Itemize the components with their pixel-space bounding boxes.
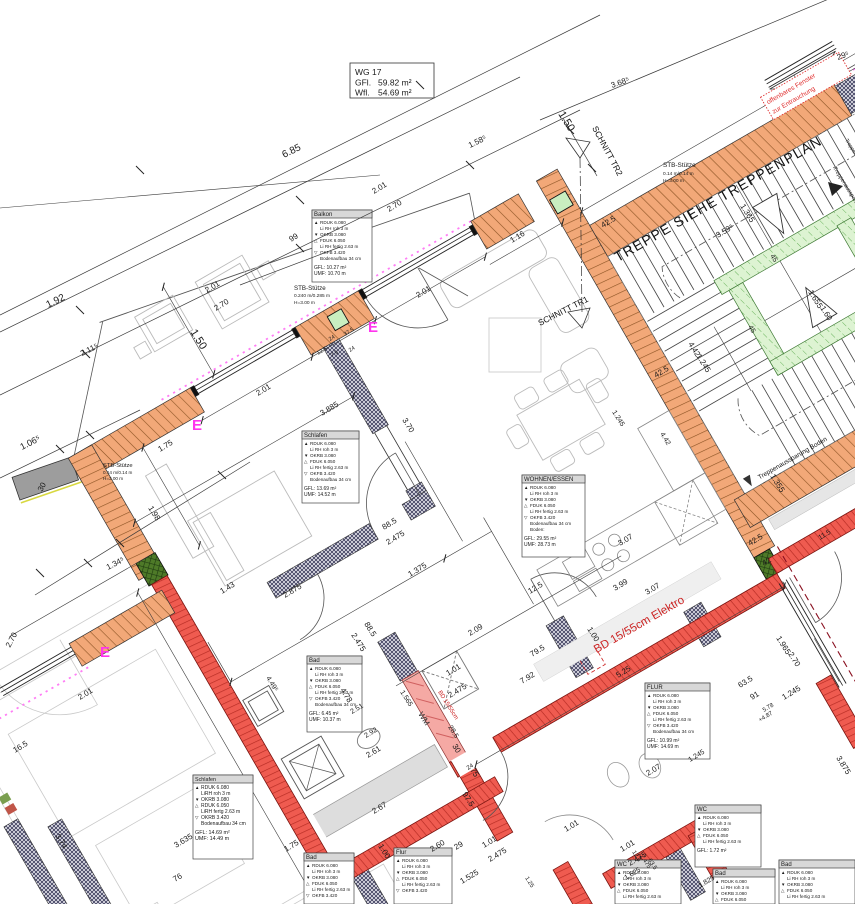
svg-text:7.92: 7.92 (518, 670, 536, 686)
svg-text:1.245: 1.245 (610, 409, 625, 428)
svg-text:▲: ▲ (304, 441, 308, 446)
svg-text:4.49⁵: 4.49⁵ (264, 675, 279, 693)
svg-text:RDUK 6.080: RDUK 6.080 (703, 815, 729, 820)
svg-text:0.14 m/0.14 m: 0.14 m/0.14 m (103, 470, 133, 475)
svg-text:OKFB 3.420: OKFB 3.420 (653, 723, 679, 728)
svg-text:UMF: 28.73 m: UMF: 28.73 m (524, 542, 556, 548)
svg-text:▼: ▼ (617, 882, 621, 887)
svg-text:FDUK 6.050: FDUK 6.050 (310, 459, 336, 464)
svg-text:E: E (100, 644, 110, 661)
svg-text:2.01: 2.01 (414, 284, 432, 300)
svg-text:Bad: Bad (306, 855, 317, 861)
svg-text:▼: ▼ (309, 678, 313, 683)
svg-text:▼: ▼ (195, 797, 199, 802)
svg-text:2.09: 2.09 (466, 622, 484, 638)
svg-text:1.375: 1.375 (406, 560, 428, 578)
svg-text:RDUK 6.080: RDUK 6.080 (315, 666, 341, 671)
svg-text:Li RH fertig 2.63 m: Li RH fertig 2.63 m (310, 465, 348, 470)
svg-text:1.06⁵: 1.06⁵ (18, 433, 42, 452)
svg-text:▼: ▼ (524, 497, 528, 502)
svg-text:1.245: 1.245 (694, 352, 713, 374)
svg-text:1.92: 1.92 (44, 292, 67, 311)
svg-text:Li RH fertig 2.63 m: Li RH fertig 2.63 m (530, 509, 568, 514)
svg-text:OKFB 3.420: OKFB 3.420 (530, 515, 556, 520)
svg-text:2.01: 2.01 (76, 686, 94, 702)
svg-text:OKRB 3.080: OKRB 3.080 (402, 870, 428, 875)
svg-text:▲: ▲ (697, 815, 701, 820)
svg-text:Li RH roh 3 m: Li RH roh 3 m (721, 885, 750, 890)
svg-text:1.75: 1.75 (282, 838, 300, 854)
svg-text:Bodenaufbau 34 cm: Bodenaufbau 34 cm (530, 521, 571, 526)
svg-text:RDUK 6.080: RDUK 6.080 (787, 870, 813, 875)
svg-text:▲: ▲ (314, 220, 318, 225)
svg-text:3.99: 3.99 (611, 577, 629, 593)
svg-text:UMF: 10.37 m: UMF: 10.37 m (309, 717, 341, 723)
svg-text:Li RH roh 3 m: Li RH roh 3 m (312, 869, 341, 874)
svg-text:RDUK 6.080: RDUK 6.080 (310, 441, 336, 446)
svg-text:Treppenanlage: Treppenanlage (843, 138, 855, 170)
svg-text:0.14 m/0.14 m: 0.14 m/0.14 m (663, 171, 694, 177)
svg-text:2.70: 2.70 (786, 650, 802, 668)
svg-text:WOHNEN/ESSEN: WOHNEN/ESSEN (524, 477, 573, 483)
svg-text:Li RH roh 3 m: Li RH roh 3 m (315, 672, 344, 677)
svg-text:16.5: 16.5 (11, 739, 29, 755)
svg-text:Wfl.: Wfl. (355, 88, 370, 98)
svg-text:2.92: 2.92 (363, 727, 378, 740)
svg-text:2.01: 2.01 (370, 180, 388, 196)
svg-text:▲: ▲ (781, 870, 785, 875)
svg-text:E: E (368, 319, 378, 336)
svg-text:OKFB 3.420: OKFB 3.420 (312, 893, 338, 898)
svg-text:UMF: 14.52 m: UMF: 14.52 m (304, 492, 336, 498)
svg-text:STB-Stütze: STB-Stütze (294, 285, 326, 292)
svg-text:Balkon: Balkon (314, 212, 332, 218)
svg-text:FDUK 6.050: FDUK 6.050 (320, 238, 346, 243)
svg-text:88.5: 88.5 (380, 516, 398, 532)
svg-text:3.885: 3.885 (318, 399, 340, 417)
svg-text:▲: ▲ (715, 879, 719, 884)
svg-text:Li RH roh 3 m: Li RH roh 3 m (402, 864, 431, 869)
svg-text:OKRB 3.080: OKRB 3.080 (315, 678, 341, 683)
svg-text:▲: ▲ (306, 863, 310, 868)
svg-text:GFL: 1.72 m²: GFL: 1.72 m² (697, 848, 727, 854)
svg-text:▲: ▲ (309, 666, 313, 671)
svg-text:Bodenaufbau 34 cm: Bodenaufbau 34 cm (320, 256, 361, 261)
svg-text:Li RH roh 3 m: Li RH roh 3 m (310, 447, 339, 452)
svg-text:59.82 m²: 59.82 m² (378, 78, 412, 88)
svg-text:▼: ▼ (306, 875, 310, 880)
svg-text:▼: ▼ (715, 891, 719, 896)
svg-text:Li RH roh 3 m: Li RH roh 3 m (320, 226, 349, 231)
svg-text:2.70: 2.70 (212, 297, 230, 313)
svg-text:29⁵: 29⁵ (836, 49, 850, 61)
svg-text:OKFB 3.420: OKFB 3.420 (310, 471, 336, 476)
svg-text:FDUK 6.050: FDUK 6.050 (787, 888, 813, 893)
svg-text:▼: ▼ (697, 827, 701, 832)
svg-text:SCHNITT TR2: SCHNITT TR2 (590, 124, 625, 177)
svg-text:Li RH roh 3 m: Li RH roh 3 m (653, 699, 682, 704)
svg-text:UMF: 14.49 m: UMF: 14.49 m (195, 836, 230, 842)
svg-text:WC: WC (697, 807, 708, 813)
svg-text:FDUK 6.050: FDUK 6.050 (315, 684, 341, 689)
svg-text:2.01: 2.01 (254, 382, 272, 398)
svg-text:1.58⁵: 1.58⁵ (467, 133, 488, 149)
svg-text:Li RH roh 3 m: Li RH roh 3 m (530, 491, 559, 496)
svg-text:3.70: 3.70 (400, 416, 416, 434)
svg-text:▼: ▼ (647, 705, 651, 710)
svg-text:Li RH fertig 2.63 m: Li RH fertig 2.63 m (703, 839, 741, 844)
svg-text:Schlafen: Schlafen (304, 433, 327, 439)
svg-text:FDUK 6.050: FDUK 6.050 (653, 711, 679, 716)
svg-text:▼: ▼ (781, 882, 785, 887)
svg-text:6.85: 6.85 (280, 142, 303, 161)
svg-text:4.42: 4.42 (658, 431, 671, 446)
svg-text:1.245: 1.245 (780, 683, 802, 701)
svg-text:OKRB 3.080: OKRB 3.080 (703, 827, 729, 832)
svg-text:OKFB 3.420: OKFB 3.420 (402, 888, 428, 893)
svg-text:FDUK 6.050: FDUK 6.050 (721, 897, 747, 902)
svg-text:Li RH fertig 2.63 m: Li RH fertig 2.63 m (320, 244, 358, 249)
svg-text:12.5: 12.5 (526, 580, 544, 596)
svg-text:0.240 m/0.285 m: 0.240 m/0.285 m (294, 293, 330, 299)
svg-text:Bodenaufbau 34 cm: Bodenaufbau 34 cm (201, 821, 246, 827)
svg-text:▲: ▲ (195, 785, 199, 790)
svg-text:OKFB 3.420: OKFB 3.420 (320, 250, 346, 255)
svg-text:RDUK 6.080: RDUK 6.080 (320, 220, 346, 225)
svg-text:2.61: 2.61 (364, 744, 382, 760)
svg-text:OKRB 3.080: OKRB 3.080 (721, 891, 747, 896)
svg-text:RDUK 6.080: RDUK 6.080 (402, 858, 428, 863)
svg-text:2.475: 2.475 (349, 631, 368, 653)
svg-text:24: 24 (348, 345, 356, 353)
svg-text:2.475: 2.475 (384, 528, 406, 546)
svg-text:3.875: 3.875 (834, 754, 853, 776)
svg-text:99: 99 (287, 231, 300, 244)
svg-text:Schlafen: Schlafen (195, 777, 216, 783)
svg-text:1.34⁵: 1.34⁵ (105, 555, 126, 572)
svg-text:1.25: 1.25 (523, 876, 535, 890)
svg-text:OKRB 3.080: OKRB 3.080 (320, 232, 346, 237)
svg-text:29: 29 (452, 839, 465, 852)
svg-text:OKRB 3.080: OKRB 3.080 (310, 453, 336, 458)
svg-text:RDUK 6.080: RDUK 6.080 (530, 485, 556, 490)
svg-text:▲: ▲ (647, 693, 651, 698)
svg-text:RDUK 6.080: RDUK 6.080 (312, 863, 338, 868)
svg-text:1.50: 1.50 (187, 327, 209, 352)
svg-text:Bad: Bad (309, 658, 320, 664)
svg-text:▼: ▼ (396, 870, 400, 875)
svg-text:1.01: 1.01 (444, 662, 462, 678)
svg-text:STB-Stütze: STB-Stütze (663, 162, 696, 169)
svg-text:1.75: 1.75 (156, 438, 174, 454)
svg-text:2.475: 2.475 (486, 845, 508, 863)
svg-text:WC: WC (617, 862, 628, 868)
svg-text:Li RH fertig 2.63 m: Li RH fertig 2.63 m (312, 887, 350, 892)
svg-text:OKRB 3.080: OKRB 3.080 (653, 705, 679, 710)
svg-text:RDUK 6.080: RDUK 6.080 (721, 879, 747, 884)
svg-text:3.07: 3.07 (616, 532, 634, 548)
svg-text:UMF: 14.69 m: UMF: 14.69 m (647, 744, 679, 750)
svg-text:E: E (192, 417, 202, 434)
svg-text:3.635: 3.635 (172, 831, 194, 849)
svg-text:RDUK 6.080: RDUK 6.080 (653, 693, 679, 698)
svg-text:WG 17: WG 17 (355, 67, 382, 77)
svg-text:79.5: 79.5 (528, 643, 546, 659)
svg-text:▲: ▲ (396, 858, 400, 863)
svg-text:OKRB 3.080: OKRB 3.080 (312, 875, 338, 880)
svg-text:FDUK 6.050: FDUK 6.050 (402, 876, 428, 881)
svg-text:Li RH fertig 2.63 m: Li RH fertig 2.63 m (402, 882, 440, 887)
svg-text:STB-Stütze: STB-Stütze (103, 463, 133, 469)
svg-text:2.70: 2.70 (4, 630, 20, 648)
svg-text:Bodenaufbau 34 cm: Bodenaufbau 34 cm (315, 702, 356, 707)
svg-text:Bad: Bad (781, 862, 792, 868)
svg-text:1.98: 1.98 (146, 504, 162, 522)
svg-text:91: 91 (748, 689, 761, 702)
svg-text:FLUR: FLUR (647, 685, 663, 691)
svg-text:Flur: Flur (396, 850, 406, 856)
svg-text:1.01: 1.01 (562, 818, 580, 834)
svg-text:3.68⁵: 3.68⁵ (610, 75, 631, 90)
svg-text:OKFB 3.420: OKFB 3.420 (315, 696, 341, 701)
svg-text:H=3.00 m: H=3.00 m (294, 300, 315, 306)
svg-text:Bodenaufbau 34 cm: Bodenaufbau 34 cm (310, 477, 351, 482)
svg-text:▼: ▼ (304, 453, 308, 458)
svg-text:FDUK 6.050: FDUK 6.050 (623, 888, 649, 893)
svg-text:▲: ▲ (524, 485, 528, 490)
svg-text:Li RH fertig 2.63 m: Li RH fertig 2.63 m (787, 894, 825, 899)
svg-text:▼: ▼ (314, 232, 318, 237)
svg-text:Boden:: Boden: (530, 527, 545, 532)
svg-text:88.5: 88.5 (362, 620, 378, 638)
svg-text:Li RH fertig 2.63 m: Li RH fertig 2.63 m (653, 717, 691, 722)
svg-text:Li RH roh 3 m: Li RH roh 3 m (787, 876, 816, 881)
svg-text:FDUK 6.050: FDUK 6.050 (312, 881, 338, 886)
svg-text:H=3.00 m: H=3.00 m (663, 178, 684, 184)
svg-text:OKRB 3.080: OKRB 3.080 (530, 497, 556, 502)
svg-text:Bodenaufbau 34 cm: Bodenaufbau 34 cm (653, 729, 694, 734)
svg-text:FDUK 6.050: FDUK 6.050 (530, 503, 556, 508)
svg-text:Li RH roh 3 m: Li RH roh 3 m (703, 821, 732, 826)
svg-text:Li RH fertig 2.63 m: Li RH fertig 2.63 m (623, 894, 661, 899)
svg-text:▲: ▲ (617, 870, 621, 875)
svg-text:H=3.00 m: H=3.00 m (103, 476, 123, 481)
svg-text:GFl.: GFl. (355, 78, 371, 88)
svg-text:2.11⁵: 2.11⁵ (79, 342, 99, 358)
svg-text:FDUK 6.050: FDUK 6.050 (703, 833, 729, 838)
svg-text:63.5: 63.5 (736, 674, 754, 690)
svg-text:OKRB 3.080: OKRB 3.080 (787, 882, 813, 887)
svg-text:Bad: Bad (715, 871, 726, 877)
svg-text:3.59⁵: 3.59⁵ (714, 222, 735, 239)
svg-text:1.43: 1.43 (218, 580, 236, 596)
svg-text:1.525: 1.525 (458, 867, 480, 885)
svg-text:54.69 m²: 54.69 m² (378, 88, 412, 98)
svg-text:UMF: 10.70 m: UMF: 10.70 m (314, 271, 346, 277)
svg-text:76: 76 (171, 871, 184, 884)
svg-text:OKRB 3.080: OKRB 3.080 (623, 882, 649, 887)
svg-text:2.70: 2.70 (385, 198, 403, 214)
